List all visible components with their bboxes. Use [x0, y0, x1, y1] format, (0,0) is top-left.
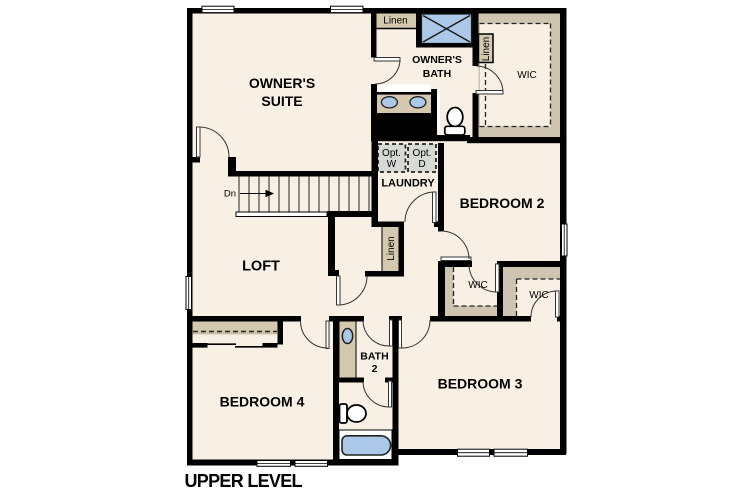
svg-text:LOFT: LOFT [242, 259, 280, 275]
svg-text:BEDROOM 3: BEDROOM 3 [438, 376, 523, 392]
svg-text:BATH: BATH [360, 351, 388, 363]
svg-text:BATH: BATH [423, 68, 451, 80]
svg-text:SUITE: SUITE [261, 93, 302, 109]
svg-text:BEDROOM 2: BEDROOM 2 [460, 195, 545, 211]
svg-text:WIC: WIC [517, 70, 536, 81]
svg-text:UPPER LEVEL: UPPER LEVEL [185, 471, 303, 491]
svg-text:LAUNDRY: LAUNDRY [381, 178, 435, 190]
svg-text:D: D [418, 159, 425, 170]
svg-text:Dn: Dn [224, 189, 236, 200]
svg-text:WIC: WIC [529, 290, 548, 301]
svg-text:2: 2 [372, 363, 378, 375]
svg-text:Linen: Linen [386, 236, 397, 260]
svg-text:Linen: Linen [481, 37, 492, 61]
svg-text:W: W [387, 159, 397, 170]
svg-text:Opt.: Opt. [413, 148, 432, 159]
svg-text:WIC: WIC [468, 280, 487, 291]
svg-text:Linen: Linen [383, 16, 407, 27]
svg-text:BEDROOM 4: BEDROOM 4 [220, 394, 305, 410]
svg-text:OWNER'S: OWNER'S [249, 75, 315, 91]
svg-text:Opt.: Opt. [382, 148, 401, 159]
svg-text:OWNER'S: OWNER'S [412, 54, 462, 66]
